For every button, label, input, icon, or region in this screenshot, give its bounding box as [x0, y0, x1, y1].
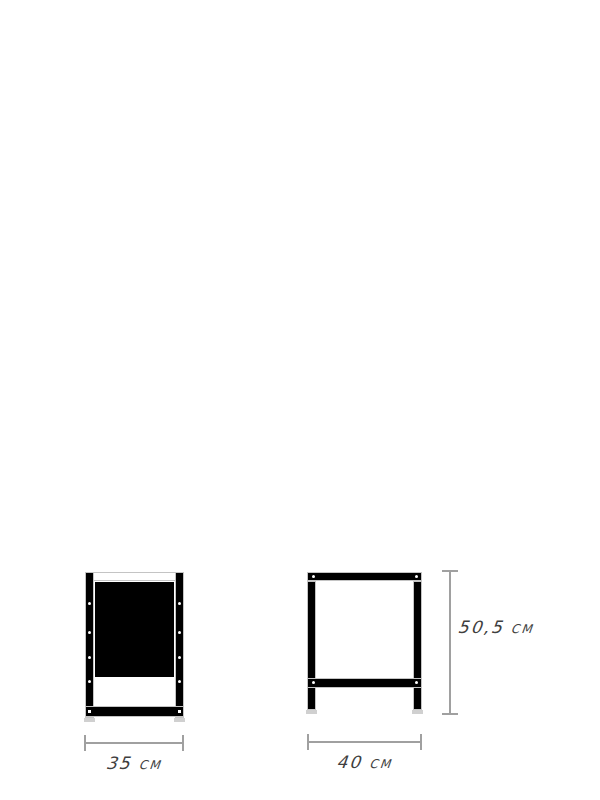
screw-dot — [312, 575, 315, 578]
side-left-leg — [307, 581, 316, 710]
side-right-leg — [413, 581, 422, 710]
front-bottom-rail — [85, 706, 184, 717]
dimension-line — [84, 742, 184, 744]
dimension-tick-bottom — [442, 713, 458, 715]
screw-dot — [178, 680, 181, 683]
screw-dot — [88, 680, 91, 683]
side-top-rail — [307, 572, 422, 581]
dimension-side-width: 40 cm — [307, 734, 422, 779]
screw-dot — [415, 575, 418, 578]
screw-dot — [178, 631, 181, 634]
screw-dot — [88, 710, 91, 713]
dimension-front-width: 35 cm — [84, 735, 184, 780]
screw-dot — [178, 602, 181, 605]
front-left-foot — [84, 718, 95, 722]
dimension-tick-right — [420, 734, 422, 750]
screw-dot — [88, 602, 91, 605]
front-view — [85, 572, 184, 722]
front-top-rail — [85, 572, 184, 581]
screw-dot — [178, 656, 181, 659]
side-left-foot — [306, 710, 317, 714]
technical-drawing-canvas: 35 cm 40 cm 50,5 cm — [0, 0, 600, 800]
dimension-label-side-width: 40 cm — [306, 752, 423, 772]
screw-dot — [312, 681, 315, 684]
dimension-label-front-width: 35 cm — [83, 753, 185, 773]
side-cross-rail — [307, 678, 422, 688]
side-view — [307, 572, 422, 718]
front-right-leg — [175, 572, 184, 718]
dimension-line — [449, 570, 451, 715]
side-right-foot — [412, 710, 423, 714]
dimension-label-height: 50,5 cm — [457, 617, 535, 637]
screw-dot — [88, 656, 91, 659]
dimension-height: 50,5 cm — [442, 570, 552, 716]
dimension-tick-right — [182, 735, 184, 751]
front-left-leg — [85, 572, 94, 718]
dimension-line — [307, 741, 422, 743]
front-right-foot — [174, 718, 185, 722]
screw-dot — [88, 631, 91, 634]
screw-dot — [415, 681, 418, 684]
screw-dot — [178, 710, 181, 713]
front-panel — [95, 582, 174, 677]
